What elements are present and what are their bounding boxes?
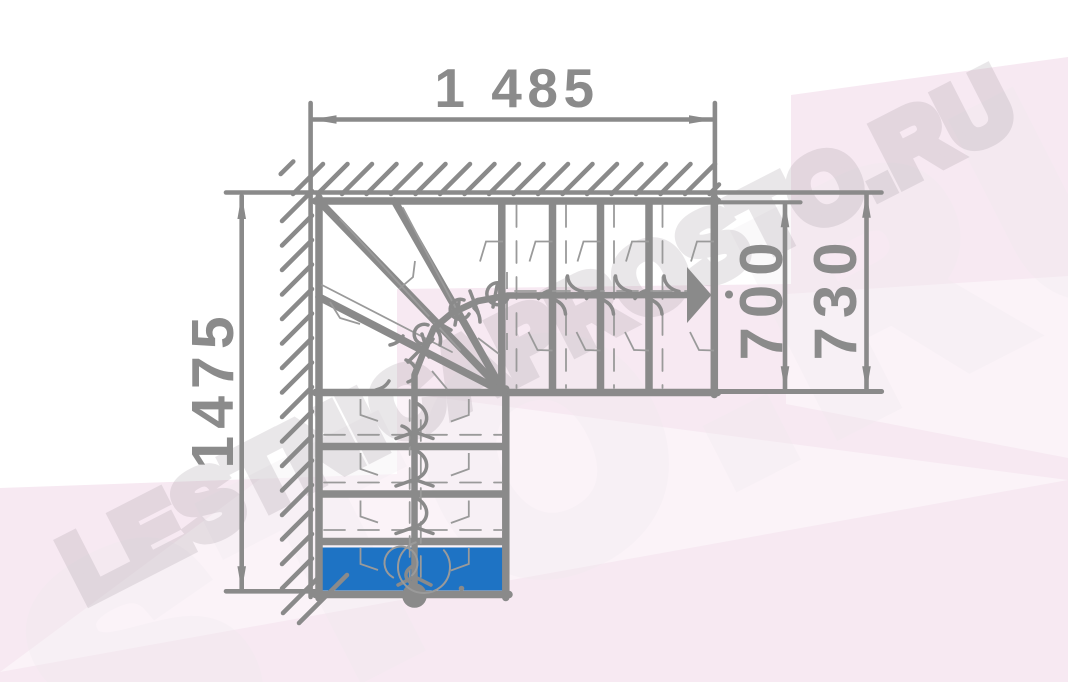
svg-text:730: 730 [802,233,869,360]
svg-text:1475: 1475 [180,309,246,468]
svg-text:700: 700 [728,233,795,360]
svg-text:1 485: 1 485 [434,57,599,119]
